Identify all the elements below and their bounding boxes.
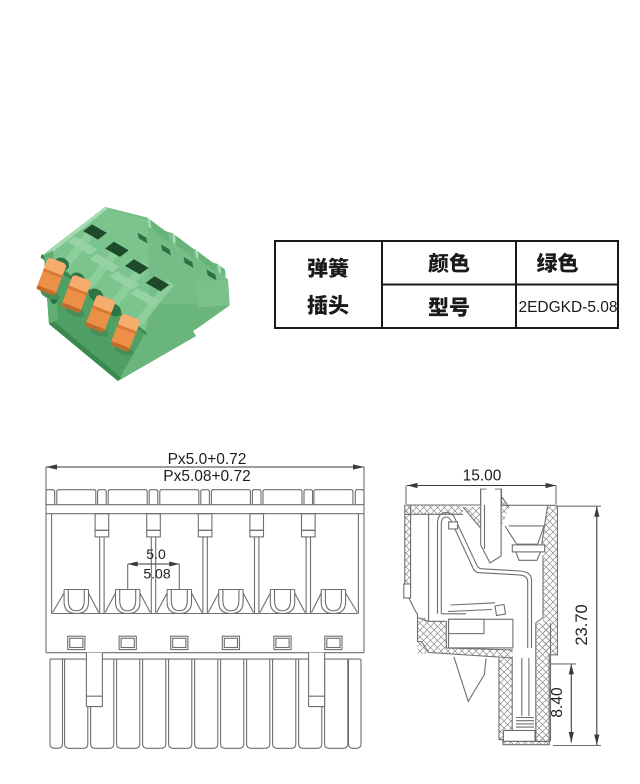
svg-text:2EDGKD-5.08: 2EDGKD-5.08 xyxy=(518,299,617,316)
svg-text:15.00: 15.00 xyxy=(463,468,502,485)
svg-text:Px5.08+0.72: Px5.08+0.72 xyxy=(163,468,250,485)
svg-text:23.70: 23.70 xyxy=(573,604,591,645)
svg-text:5.0: 5.0 xyxy=(146,546,166,562)
svg-text:8.40: 8.40 xyxy=(549,687,566,718)
svg-text:Px5.0+0.72: Px5.0+0.72 xyxy=(168,451,247,468)
svg-text:5.08: 5.08 xyxy=(143,566,170,582)
